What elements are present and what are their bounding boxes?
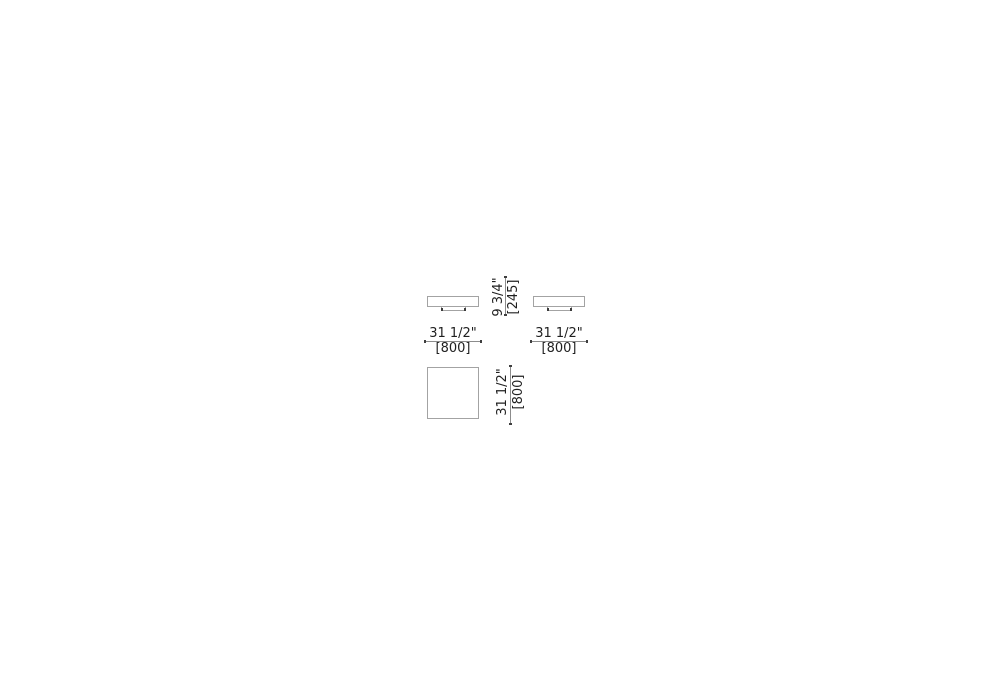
dimension-drawing-canvas: 31 1/2" [800] 31 1/2" [800] 9 3/4" [245]… — [0, 0, 1000, 700]
dimension-label-height-metric: [245] — [507, 242, 521, 352]
dimension-label-depth-imperial: 31 1/2" — [496, 337, 510, 447]
dimension-label-depth-metric: [800] — [512, 337, 526, 447]
plan-view-outline — [427, 367, 479, 419]
tabletop-outline-left — [427, 296, 479, 307]
tabletop-outline-right — [533, 296, 585, 307]
dimension-label-height-imperial: 9 3/4" — [492, 242, 506, 352]
